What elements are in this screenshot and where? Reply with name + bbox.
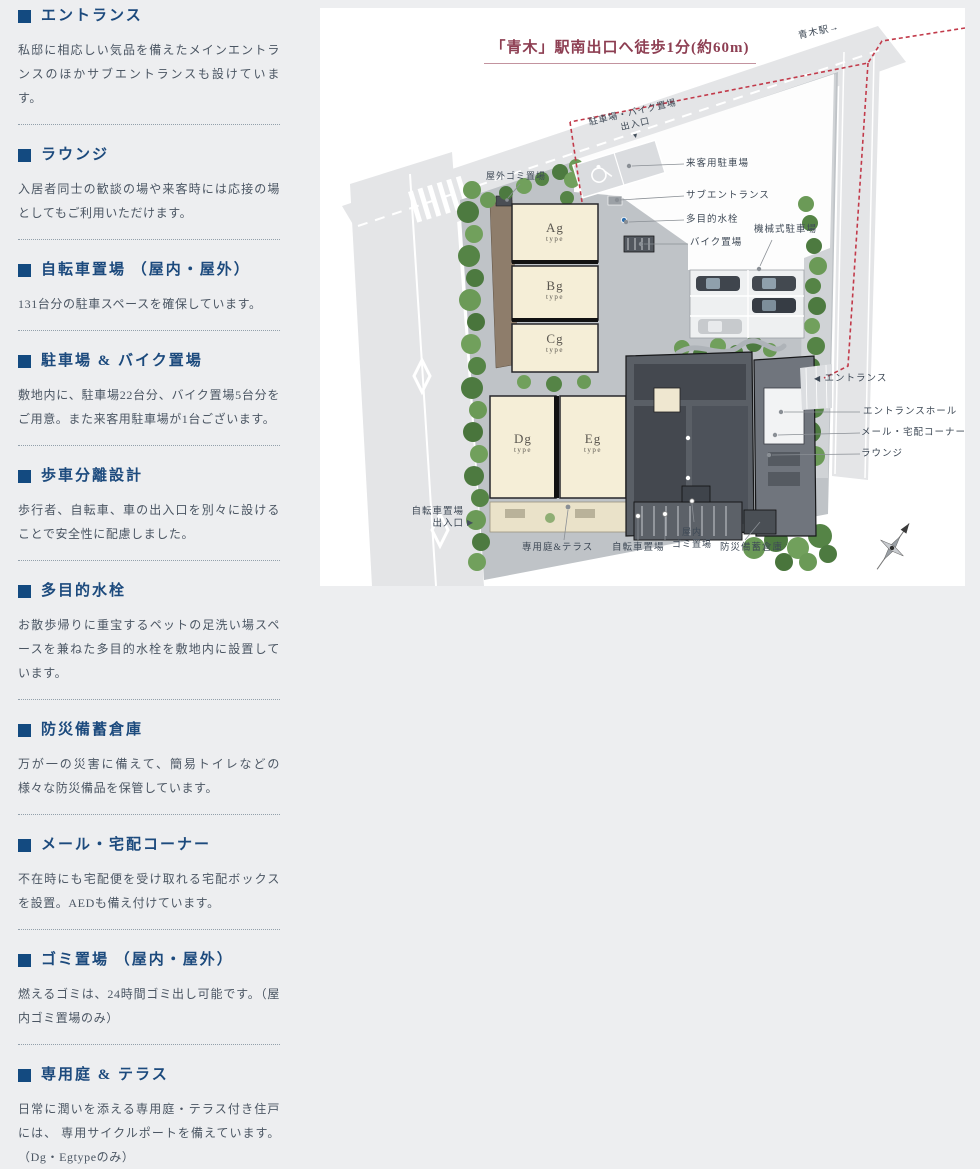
- bicycle-gate-marker-icon: ▶: [467, 518, 473, 527]
- feature-title: エントランス: [41, 8, 143, 24]
- mechanical-parking-label: 機械式駐車場: [754, 224, 817, 236]
- mail-corner-label: メール・宅配コーナー: [861, 427, 966, 439]
- feature-title: メール・宅配コーナー: [41, 837, 211, 853]
- feature-section-bicycle-parking: 自転車置場 （屋内・屋外） 131台分の駐車スペースを確保しています。: [18, 262, 280, 331]
- square-bullet-icon: [18, 470, 31, 483]
- square-bullet-icon: [18, 839, 31, 852]
- square-bullet-icon: [18, 355, 31, 368]
- feature-description: 私邸に相応しい気品を備えたメインエントランスのほかサブエントランスも設けています…: [18, 38, 280, 110]
- square-bullet-icon: [18, 724, 31, 737]
- square-bullet-icon: [18, 1069, 31, 1082]
- feature-description: 燃えるゴミは、24時間ゴミ出し可能です。（屋内ゴミ置場のみ）: [18, 982, 280, 1030]
- dotted-divider: [18, 1044, 280, 1045]
- feature-description: 不在時にも宅配便を受け取れる宅配ボックスを設置。AEDも備え付けています。: [18, 867, 280, 915]
- square-bullet-icon: [18, 585, 31, 598]
- feature-title: ラウンジ: [41, 147, 109, 163]
- feature-section-disaster-storage: 防災備蓄倉庫 万が一の災害に備えて、簡易トイレなどの様々な防災備品を保管していま…: [18, 722, 280, 815]
- square-bullet-icon: [18, 954, 31, 967]
- building-label-eg: Eg type: [564, 432, 622, 454]
- private-garden-terrace: [490, 502, 626, 532]
- feature-heading: 防災備蓄倉庫: [18, 722, 280, 738]
- feature-heading: 専用庭 & テラス: [18, 1067, 280, 1083]
- feature-heading: 駐車場 & バイク置場: [18, 353, 280, 369]
- square-bullet-icon: [18, 149, 31, 162]
- feature-section-separation-design: 歩車分離設計 歩行者、自転車、車の出入口を別々に設けることで安全性に配慮しました…: [18, 468, 280, 561]
- feature-description: お散歩帰りに重宝するペットの足洗い場スペースを兼ねた多目的水栓を敷地内に設置して…: [18, 613, 280, 685]
- indoor-garbage-label: 屋内 ゴミ置場: [668, 526, 716, 550]
- feature-section-faucet: 多目的水栓 お散歩帰りに重宝するペットの足洗い場スペースを兼ねた多目的水栓を敷地…: [18, 583, 280, 700]
- feature-description: 入居者同士の歓談の場や来客時には応接の場としてもご利用いただけます。: [18, 177, 280, 225]
- feature-section-car-bike-parking: 駐車場 & バイク置場 敷地内に、駐車場22台分、バイク置場5台分をご用意。また…: [18, 353, 280, 446]
- gate-marker-icon: ▼: [631, 131, 640, 140]
- feature-heading: 多目的水栓: [18, 583, 280, 599]
- dotted-divider: [18, 124, 280, 125]
- private-garden-label: 専用庭&テラス: [522, 542, 593, 554]
- feature-title: ゴミ置場 （屋内・屋外）: [41, 952, 234, 968]
- bicycle-parking-label: 自転車置場: [612, 542, 665, 554]
- map-title: 「青木」駅南出口へ徒歩1分(約60m): [484, 36, 756, 64]
- multi-faucet-label: 多目的水栓: [686, 214, 739, 226]
- feature-description: 131台分の駐車スペースを確保しています。: [18, 292, 280, 316]
- site-plan-illustration: [320, 8, 965, 586]
- dotted-divider: [18, 330, 280, 331]
- disaster-storage-label: 防災備蓄倉庫: [720, 542, 783, 554]
- building-label-dg: Dg type: [494, 432, 552, 454]
- feature-title: 防災備蓄倉庫: [41, 722, 143, 738]
- dotted-divider: [18, 814, 280, 815]
- feature-description: 万が一の災害に備えて、簡易トイレなどの様々な防災備品を保管しています。: [18, 752, 280, 800]
- bicycle-gate-label: 自転車置場 出入口: [390, 506, 464, 530]
- feature-heading: ラウンジ: [18, 147, 280, 163]
- sub-entrance-label: サブエントランス: [686, 190, 770, 202]
- feature-title: 歩車分離設計: [41, 468, 143, 484]
- feature-title: 駐車場 & バイク置場: [41, 353, 203, 369]
- indoor-garbage-room: [682, 486, 710, 502]
- feature-heading: ゴミ置場 （屋内・屋外）: [18, 952, 280, 968]
- feature-section-mail-corner: メール・宅配コーナー 不在時にも宅配便を受け取れる宅配ボックスを設置。AEDも備…: [18, 837, 280, 930]
- feature-heading: 歩車分離設計: [18, 468, 280, 484]
- feature-section-garbage: ゴミ置場 （屋内・屋外） 燃えるゴミは、24時間ゴミ出し可能です。（屋内ゴミ置場…: [18, 952, 280, 1045]
- feature-section-lounge: ラウンジ 入居者同士の歓談の場や来客時には応接の場としてもご利用いただけます。: [18, 147, 280, 240]
- feature-title: 専用庭 & テラス: [41, 1067, 169, 1083]
- visitor-parking-label: 来客用駐車場: [686, 158, 749, 170]
- feature-sidebar: エントランス 私邸に相応しい気品を備えたメインエントランスのほかサブエントランス…: [18, 8, 280, 1169]
- entrance-marker-icon: ◀: [814, 374, 821, 383]
- feature-description: 敷地内に、駐車場22台分、バイク置場5台分をご用意。また来客用駐車場が1台ござい…: [18, 383, 280, 431]
- feature-title: 多目的水栓: [41, 583, 126, 599]
- feature-section-entrance: エントランス 私邸に相応しい気品を備えたメインエントランスのほかサブエントランス…: [18, 8, 280, 125]
- feature-section-private-garden: 専用庭 & テラス 日常に潤いを添える専用庭・テラス付き住戸には、 専用サイクル…: [18, 1067, 280, 1169]
- feature-heading: エントランス: [18, 8, 280, 24]
- feature-title: 自転車置場 （屋内・屋外）: [41, 262, 251, 278]
- dotted-divider: [18, 239, 280, 240]
- bike-parking-label: バイク置場: [690, 237, 742, 249]
- feature-description: 歩行者、自転車、車の出入口を別々に設けることで安全性に配慮しました。: [18, 498, 280, 546]
- dotted-divider: [18, 560, 280, 561]
- entrance-label: ◀ エントランス: [814, 373, 887, 385]
- entrance-hall-label: エントランスホール: [863, 406, 957, 418]
- building-label-cg: Cg type: [526, 332, 584, 354]
- lounge-label: ラウンジ: [861, 448, 903, 460]
- square-bullet-icon: [18, 10, 31, 23]
- feature-heading: 自転車置場 （屋内・屋外）: [18, 262, 280, 278]
- mechanical-parking-area: [690, 270, 804, 338]
- site-map-panel: 「青木」駅南出口へ徒歩1分(約60m) 青木駅→ 駐車場・バイク置場 出入口 ▼…: [320, 8, 965, 586]
- dotted-divider: [18, 929, 280, 930]
- feature-heading: メール・宅配コーナー: [18, 837, 280, 853]
- building-label-bg: Bg type: [526, 279, 584, 301]
- square-bullet-icon: [18, 264, 31, 277]
- dotted-divider: [18, 699, 280, 700]
- feature-description: 日常に潤いを添える専用庭・テラス付き住戸には、 専用サイクルポートを備えています…: [18, 1097, 280, 1169]
- outdoor-garbage-label: 屋外ゴミ置場: [486, 170, 546, 182]
- building-label-ag: Ag type: [526, 221, 584, 243]
- dotted-divider: [18, 445, 280, 446]
